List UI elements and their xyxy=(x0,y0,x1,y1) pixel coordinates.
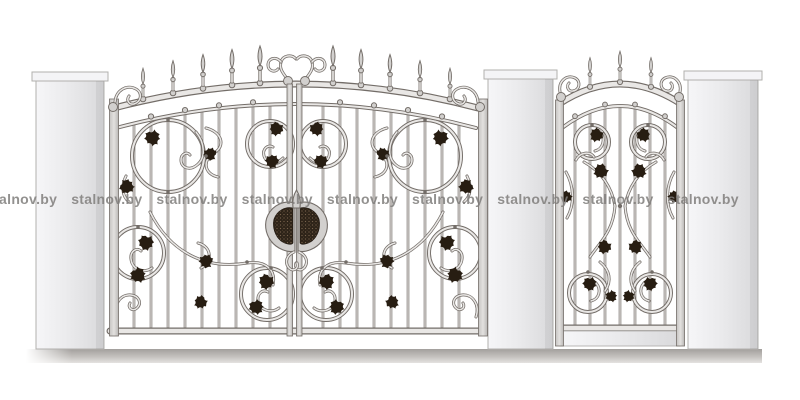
watermark-text: stalnov.by xyxy=(0,191,57,207)
watermark-text: stalnov.by xyxy=(412,191,483,207)
watermark-text: stalnov.by xyxy=(156,191,227,207)
spear-finial xyxy=(588,57,592,83)
spear-finial xyxy=(330,46,335,80)
spear-finial xyxy=(230,49,235,82)
watermark-text: stalnov.by xyxy=(497,191,568,207)
ornament-ball xyxy=(216,103,221,108)
watermark-text: stalnov.by xyxy=(327,191,398,207)
spear-finial xyxy=(388,54,393,85)
spear-finial xyxy=(359,49,364,82)
spear-finial xyxy=(618,51,622,79)
right-frame-post xyxy=(479,99,488,336)
watermark-text: stalnov.by xyxy=(71,191,142,207)
left-frame-post xyxy=(110,99,119,336)
spear-finial xyxy=(171,61,175,90)
ornament-ball xyxy=(371,103,376,108)
ornament-ball xyxy=(337,100,342,105)
ornament-ball xyxy=(439,114,444,119)
right-pillar xyxy=(684,71,762,349)
watermark-layer: stalnov.bystalnov.bystalnov.bystalnov.by… xyxy=(0,191,739,207)
wicket-right-post xyxy=(677,100,685,346)
ornament-ball xyxy=(250,100,255,105)
spear-finial xyxy=(141,68,145,96)
second-arch xyxy=(116,104,476,128)
spear-finial xyxy=(448,68,452,96)
ornament-ball xyxy=(603,102,608,107)
watermark-text: stalnov.by xyxy=(668,191,739,207)
wicket-kick-panel xyxy=(560,331,680,346)
ornament-ball xyxy=(633,102,638,107)
ground-strip xyxy=(26,349,762,363)
gate-leaf xyxy=(112,105,293,328)
gate-catalogue-image: stalnov.bystalnov.bystalnov.bystalnov.by… xyxy=(0,0,800,400)
watermark-text: stalnov.by xyxy=(582,191,653,207)
wicket-left-post xyxy=(556,100,564,346)
middle-pillar xyxy=(484,70,557,349)
left-pillar xyxy=(32,72,108,349)
spear-finial xyxy=(257,46,262,80)
spear-finials xyxy=(588,51,653,84)
ornament-ball xyxy=(405,108,410,113)
ornament-ball xyxy=(182,108,187,113)
spear-finial xyxy=(201,54,206,85)
ornament-ball xyxy=(148,114,153,119)
spear-finial xyxy=(649,57,653,83)
ornament-ball xyxy=(663,114,668,119)
watermark-text: stalnov.by xyxy=(242,191,313,207)
spear-finial xyxy=(418,61,422,90)
ornament-ball xyxy=(573,114,578,119)
vertical-bars xyxy=(575,106,665,326)
